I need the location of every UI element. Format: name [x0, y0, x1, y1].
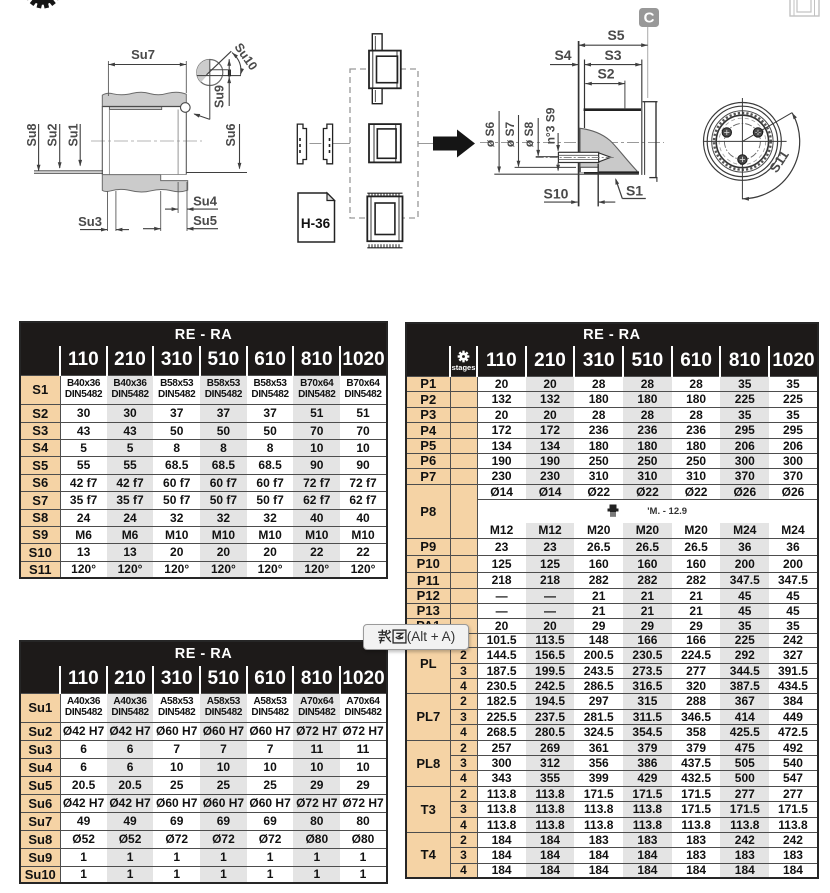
svg-text:S2: S2 — [597, 66, 614, 82]
svg-text:Su4: Su4 — [193, 194, 218, 209]
svg-text:Su8: Su8 — [25, 123, 39, 146]
svg-text:S10: S10 — [544, 186, 569, 202]
svg-text:S4: S4 — [554, 47, 571, 63]
svg-text:C: C — [644, 10, 655, 27]
svg-text:ø S7: ø S7 — [503, 122, 517, 148]
svg-text:Su1: Su1 — [67, 123, 81, 146]
svg-text:H-36: H-36 — [301, 216, 331, 231]
svg-text:S11: S11 — [767, 147, 793, 175]
svg-text:Su2: Su2 — [46, 123, 60, 146]
svg-text:n°3 S9: n°3 S9 — [544, 107, 558, 144]
svg-text:S1: S1 — [626, 183, 643, 199]
svg-text:Su6: Su6 — [224, 123, 238, 146]
svg-text:S5: S5 — [607, 27, 624, 43]
svg-text:Su9: Su9 — [213, 85, 227, 108]
svg-text:Su7: Su7 — [131, 47, 155, 62]
svg-text:ø S6: ø S6 — [483, 122, 497, 148]
svg-text:ø S8: ø S8 — [522, 122, 536, 148]
svg-text:S3: S3 — [604, 47, 621, 63]
svg-text:Su5: Su5 — [193, 213, 217, 228]
svg-text:Su3: Su3 — [78, 214, 102, 229]
